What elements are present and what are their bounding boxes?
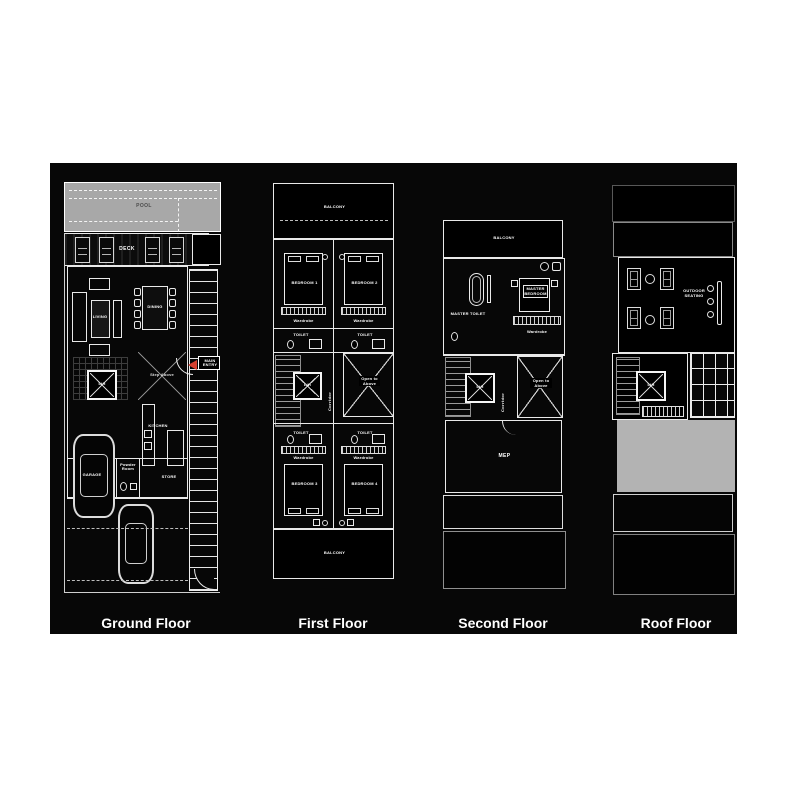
- corridor-label: Corridor: [327, 367, 332, 411]
- store-label: STORE: [154, 474, 184, 479]
- bar-stool: [707, 285, 714, 292]
- wall: [273, 328, 394, 329]
- deck-area: DECK: [64, 233, 209, 266]
- ground-floor-title: Ground Floor: [76, 615, 216, 631]
- outdoor-chair: [627, 307, 641, 329]
- toilet-label: TOILET: [281, 332, 321, 337]
- roof-slab: [613, 222, 733, 257]
- lift-label: Lift: [638, 382, 664, 387]
- outdoor-chair: [627, 268, 641, 290]
- wc-fixture: [351, 435, 358, 444]
- plot-left-boundary: [64, 233, 65, 593]
- basin-fixture: [130, 483, 137, 490]
- lower-terrace: [443, 495, 563, 529]
- lower-roof-gray: [617, 420, 735, 492]
- lounge-chair: [145, 237, 160, 263]
- pool-area: POOL: [64, 182, 221, 232]
- open-void: Open to Above: [343, 353, 394, 417]
- pillow: [348, 256, 361, 262]
- wardrobe-label: Wardrobe: [513, 329, 561, 334]
- party-wall: [333, 239, 334, 529]
- pillow: [288, 508, 301, 514]
- lift: Lift: [465, 373, 495, 403]
- bedroom2-label: BEDROOM 2: [345, 280, 384, 285]
- pillow: [306, 508, 319, 514]
- nightstand: [313, 519, 320, 526]
- bed: BEDROOM 4: [344, 464, 383, 516]
- shower-fixture: [309, 339, 322, 349]
- pergola-grid: [690, 353, 735, 418]
- pool-dashed-line: [69, 190, 217, 191]
- second-floor-title: Second Floor: [433, 615, 573, 631]
- open-void-label: Open to Above: [530, 378, 552, 388]
- bathtub: [469, 273, 484, 306]
- lift: Lift: [636, 371, 666, 401]
- wardrobe-hatch: [513, 316, 561, 325]
- nightstand: [511, 280, 518, 287]
- pillow: [348, 508, 361, 514]
- dining-chair: [169, 321, 176, 329]
- page: { "palette": { "page_bg": "#ffffff", "ca…: [0, 0, 800, 800]
- wardrobe-label: Wardrobe: [281, 455, 326, 460]
- stool: [339, 520, 345, 526]
- upper-roof-slab: [612, 185, 735, 222]
- driveway-dash: [67, 580, 188, 581]
- open-void: Open to Above: [517, 356, 563, 418]
- second-floor-plan: BALCONY MASTER TOILET MASTER BEDROOM War…: [443, 220, 569, 590]
- garage-label: GARAGE: [72, 472, 112, 477]
- wardrobe-hatch: [281, 446, 326, 454]
- dining-chair: [169, 310, 176, 318]
- step-above-label: Step Above: [148, 372, 176, 377]
- deck-label: DECK: [107, 246, 147, 252]
- powder-room-label: Powder Room: [117, 463, 139, 472]
- sink: [144, 442, 152, 450]
- wc-fixture: [120, 482, 127, 491]
- balcony: BALCONY: [273, 183, 394, 239]
- shower-fixture: [372, 339, 385, 349]
- roof-floor-title: Roof Floor: [606, 615, 737, 631]
- round-table: [645, 315, 655, 325]
- bar-stool: [707, 298, 714, 305]
- bed: BEDROOM 3: [284, 464, 323, 516]
- wardrobe-label: Wardrobe: [341, 455, 386, 460]
- round-table: [645, 274, 655, 284]
- nightstand: [347, 519, 354, 526]
- driveway-dash: [67, 528, 188, 529]
- sofa: [89, 278, 110, 290]
- wardrobe-label: Wardrobe: [341, 318, 386, 323]
- wall: [273, 423, 394, 424]
- lounge-chair: [75, 237, 90, 263]
- bar-counter: [717, 281, 722, 325]
- wardrobe-hatch: [341, 307, 386, 315]
- pillow: [366, 256, 379, 262]
- balcony-label: BALCONY: [444, 235, 564, 240]
- lower-block: [443, 531, 566, 589]
- bathtub-inner: [472, 276, 481, 303]
- lift: Lift: [293, 372, 322, 400]
- roof-lower-block: [613, 534, 735, 595]
- side-stair-ladder: [189, 269, 218, 591]
- nightstand: [551, 280, 558, 287]
- main-entry-tag: MAIN ENTRY: [198, 356, 220, 370]
- main-entry-label: MAIN ENTRY: [199, 359, 221, 368]
- dining-label: DINING: [138, 304, 172, 309]
- balcony-dash: [280, 220, 388, 221]
- pool-dashed-line: [69, 221, 178, 222]
- shower-fixture: [309, 434, 322, 444]
- balcony: BALCONY: [443, 220, 563, 258]
- bedroom1-label: BEDROOM 1: [285, 280, 324, 285]
- pool-dashed-line: [178, 198, 179, 232]
- dining-chair: [134, 321, 141, 329]
- balcony-label: BALCONY: [274, 204, 395, 209]
- entry-porch: [192, 234, 221, 265]
- floorplan-canvas: POOL DECK LIVING DINING: [50, 163, 737, 634]
- pillow: [366, 508, 379, 514]
- bed: MASTER BEDROOM: [519, 278, 550, 312]
- ground-floor-plan: POOL DECK LIVING DINING: [64, 182, 224, 594]
- wc-fixture: [351, 340, 358, 349]
- corridor-label: Corridor: [500, 368, 505, 412]
- plot-bottom-boundary: [64, 592, 220, 593]
- shower-fixture: [372, 434, 385, 444]
- pillow: [306, 256, 319, 262]
- vanity: [487, 275, 491, 303]
- door-arc: [502, 421, 516, 435]
- master-bedroom-label: MASTER BEDROOM: [523, 285, 548, 298]
- dining-chair: [134, 288, 141, 296]
- dining-chair: [169, 288, 176, 296]
- toilet-label: TOILET: [345, 332, 385, 337]
- wc-fixture: [451, 332, 458, 341]
- outdoor-chair: [660, 268, 674, 290]
- open-void-label: Open to Above: [359, 376, 380, 386]
- pool-label: POOL: [114, 203, 174, 209]
- lift-label: Lift: [89, 381, 115, 386]
- bedroom3-label: BEDROOM 3: [285, 481, 324, 486]
- lounge-chair: [169, 237, 184, 263]
- staircase-run: [642, 406, 684, 417]
- kitchen-label: KITCHEN: [136, 423, 180, 428]
- roof-floor-plan: OUTDOOR SEATING Lift: [612, 185, 737, 595]
- stool: [322, 520, 328, 526]
- balcony-label: BALCONY: [274, 550, 395, 555]
- first-floor-title: First Floor: [263, 615, 403, 631]
- wardrobe-hatch: [341, 446, 386, 454]
- bar-stool: [707, 311, 714, 318]
- bedroom4-label: BEDROOM 4: [345, 481, 384, 486]
- dining-chair: [134, 310, 141, 318]
- car: [118, 504, 154, 584]
- stove: [144, 430, 152, 438]
- first-floor-plan: BALCONY BEDROOM 1 BEDROOM 2 Wardrobe War…: [273, 183, 398, 580]
- roof-terrace-strip: [613, 494, 733, 532]
- bed: BEDROOM 1: [284, 253, 323, 305]
- living-label: LIVING: [82, 314, 118, 319]
- lift: Lift: [87, 370, 117, 400]
- wc-fixture: [287, 340, 294, 349]
- mep-room: MEP: [445, 420, 562, 493]
- pool-dashed-line: [69, 198, 217, 199]
- pillow: [288, 256, 301, 262]
- lift-label: Lift: [467, 384, 493, 389]
- kitchen-counter: [167, 430, 184, 466]
- mep-label: MEP: [446, 453, 563, 459]
- outdoor-chair: [660, 307, 674, 329]
- entry-arrow-icon: [188, 360, 197, 370]
- wardrobe-hatch: [281, 307, 326, 315]
- wardrobe-label: Wardrobe: [281, 318, 326, 323]
- armchair: [113, 300, 122, 338]
- bed: BEDROOM 2: [344, 253, 383, 305]
- lift-label: Lift: [295, 382, 320, 387]
- sofa: [89, 344, 110, 356]
- balcony: BALCONY: [273, 529, 394, 579]
- stool: [540, 262, 549, 271]
- nightstand: [552, 262, 561, 271]
- master-toilet-label: MASTER TOILET: [447, 312, 489, 317]
- coffee-table: [91, 300, 110, 338]
- wc-fixture: [287, 435, 294, 444]
